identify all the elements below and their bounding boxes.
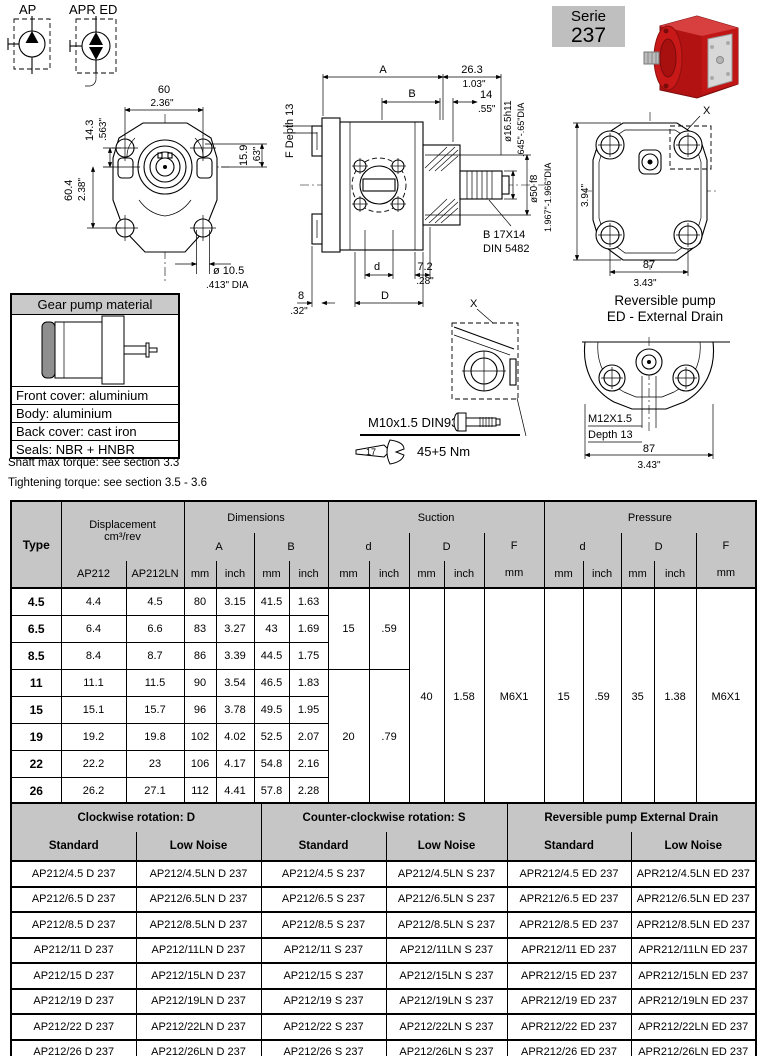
note-tightening-torque: Tightening torque: see section 3.5 - 3.6 [8, 477, 207, 489]
pump-cross-section-icon [12, 315, 174, 385]
part-row: AP212/26 D 237AP212/26LN D 237AP212/26 S… [11, 1040, 756, 1056]
part-cell: AP212/11LN D 237 [136, 938, 261, 964]
part-table-body: AP212/4.5 D 237AP212/4.5LN D 237AP212/4.… [11, 861, 756, 1056]
table-cell: 90 [184, 670, 216, 697]
dim-87: 87 [643, 259, 655, 271]
material-box-figure [12, 315, 178, 387]
part-cell: AP212/6.5LN D 237 [136, 887, 261, 913]
part-cell: AP212/8.5LN D 237 [136, 912, 261, 938]
part-cell: APR212/26 ED 237 [507, 1040, 631, 1056]
part-row: AP212/6.5 D 237AP212/6.5LN D 237AP212/6.… [11, 887, 756, 913]
table-cell: 40 [409, 588, 444, 805]
table-cell: 1.69 [289, 616, 328, 643]
table-cell: 1.63 [289, 588, 328, 616]
part-cell: AP212/4.5 D 237 [11, 861, 136, 887]
part-cell: APR212/8.5 ED 237 [507, 912, 631, 938]
sub-standard: Standard [507, 832, 631, 861]
dim-14: 14 [480, 89, 492, 101]
part-cell: APR212/15LN ED 237 [631, 963, 756, 989]
table-cell: 46.5 [254, 670, 289, 697]
displacement-line1: Displacement [62, 519, 184, 531]
note-shaft-torque: Shaft max torque: see section 3.3 [8, 457, 179, 469]
col-header-a: A [184, 533, 254, 561]
bolt-spec-label: M10x1.5 DIN931 [368, 415, 466, 430]
dim-604: 60.4 [63, 180, 75, 201]
dim-8: 8 [298, 290, 304, 302]
part-cell: AP212/15LN S 237 [386, 963, 507, 989]
dim-343in: 3.43" [633, 278, 656, 289]
table-cell: 3.15 [216, 588, 254, 616]
part-cell: AP212/6.5 S 237 [261, 887, 386, 913]
part-cell: AP212/22 S 237 [261, 1014, 386, 1040]
part-cell: APR212/4.5 ED 237 [507, 861, 631, 887]
type-cell: 22 [11, 751, 61, 778]
part-row: AP212/15 D 237AP212/15LN D 237AP212/15 S… [11, 963, 756, 989]
type-cell: 8.5 [11, 643, 61, 670]
part-cell: APR212/22 ED 237 [507, 1014, 631, 1040]
part-row: AP212/4.5 D 237AP212/4.5LN D 237AP212/4.… [11, 861, 756, 887]
dim-pilot: ø50 f8 [529, 174, 540, 203]
table-cell: 112 [184, 778, 216, 806]
part-cell: APR212/19 ED 237 [507, 989, 631, 1015]
spec-table-head: Type Displacement cm³/rev Dimensions Suc… [11, 501, 756, 588]
spec-row: 4.54.44.5803.1541.51.6315.59401.58M6X115… [11, 588, 756, 616]
type-cell: 19 [11, 724, 61, 751]
part-cell: AP212/19LN D 237 [136, 989, 261, 1015]
part-cell: APR212/15 ED 237 [507, 963, 631, 989]
dim-72: 7.2 [417, 261, 432, 273]
part-cell: APR212/26LN ED 237 [631, 1040, 756, 1056]
col-header-pressure: Pressure [544, 501, 756, 533]
part-table-head: Clockwise rotation: D Counter-clockwise … [11, 803, 756, 861]
type-cell: 4.5 [11, 588, 61, 616]
table-cell: 80 [184, 588, 216, 616]
part-row: AP212/19 D 237AP212/19LN D 237AP212/19 S… [11, 989, 756, 1015]
label-detail-x: X [470, 298, 478, 310]
dim-rev-87: 87 [643, 443, 655, 455]
part-cell: AP212/4.5LN S 237 [386, 861, 507, 887]
unit-cell: mm [254, 561, 289, 589]
part-cell: AP212/26LN D 237 [136, 1040, 261, 1056]
table-cell: 15.1 [61, 697, 126, 724]
table-cell: 3.78 [216, 697, 254, 724]
dim-shaft-dia: ø16.5h11 [503, 100, 514, 142]
table-cell: 4.17 [216, 751, 254, 778]
dim-101: 101 [565, 184, 567, 202]
serie-number: 237 [552, 25, 625, 46]
table-cell: 26.2 [61, 778, 126, 806]
part-cell: AP212/26 S 237 [261, 1040, 386, 1056]
table-cell: 20 [328, 670, 369, 806]
dim-a: A [379, 64, 387, 76]
dim-563in: .563" [98, 118, 109, 141]
part-row: AP212/11 D 237AP212/11LN D 237AP212/11 S… [11, 938, 756, 964]
col-header-displacement: Displacement cm³/rev [61, 501, 184, 561]
table-cell: 57.8 [254, 778, 289, 806]
table-cell: .59 [369, 588, 409, 670]
table-cell: .59 [583, 588, 621, 805]
table-cell: 2.16 [289, 751, 328, 778]
table-cell: M6X1 [484, 588, 544, 805]
table-cell: 8.7 [126, 643, 184, 670]
type-cell: 15 [11, 697, 61, 724]
part-cell: APR212/4.5LN ED 237 [631, 861, 756, 887]
part-cell: APR212/11LN ED 237 [631, 938, 756, 964]
reversible-title: Reversible pump ED - External Drain [575, 293, 755, 325]
unit-cell: inch [369, 561, 409, 589]
sub-low-noise: Low Noise [386, 832, 507, 861]
unit-cell: mm [544, 561, 583, 589]
table-cell: 4.4 [61, 588, 126, 616]
part-cell: AP212/22 D 237 [11, 1014, 136, 1040]
dim-d-big: D [381, 290, 389, 302]
table-cell: 44.5 [254, 643, 289, 670]
reversible-title-line1: Reversible pump [575, 293, 755, 309]
label-depth13: Depth 13 [588, 429, 633, 441]
label-f-depth: F Depth 13 [284, 104, 296, 158]
col-header-pressure-d: d [544, 533, 621, 561]
dim-63in: .63" [252, 146, 263, 164]
part-cell: AP212/11LN S 237 [386, 938, 507, 964]
table-cell: 8.4 [61, 643, 126, 670]
part-cell: AP212/4.5LN D 237 [136, 861, 261, 887]
dim-hole-mm: ø 10.5 [213, 265, 244, 277]
table-cell: 3.54 [216, 670, 254, 697]
label-spline2: DIN 5482 [483, 243, 529, 255]
serie-word: Serie [552, 6, 625, 25]
col-header-dimensions: Dimensions [184, 501, 328, 533]
dim-rev-343in: 3.43" [637, 460, 660, 471]
part-cell: AP212/15LN D 237 [136, 963, 261, 989]
col-header-suction-f: F mm [484, 533, 544, 588]
dim-60: 60 [158, 84, 170, 96]
table-cell: M6X1 [696, 588, 756, 805]
table-cell: 1.83 [289, 670, 328, 697]
rear-view-drawing: X 101 3.94" 87 3.43" [565, 100, 760, 305]
torque-label: 45+5 Nm [417, 444, 470, 459]
reversible-title-line2: ED - External Drain [575, 309, 755, 325]
table-cell: 35 [621, 588, 654, 805]
wrench-size-label: 17 [366, 447, 376, 457]
part-cell: AP212/15 S 237 [261, 963, 386, 989]
dim-236in: 2.36" [150, 98, 173, 109]
table-cell: 19.2 [61, 724, 126, 751]
part-cell: AP212/6.5 D 237 [11, 887, 136, 913]
unit-cell: inch [654, 561, 696, 589]
table-cell: 1.75 [289, 643, 328, 670]
part-cell: AP212/8.5LN S 237 [386, 912, 507, 938]
part-cell: AP212/6.5LN S 237 [386, 887, 507, 913]
table-cell: .79 [369, 670, 409, 806]
material-box: Gear pump material Front cover: aluminiu… [10, 293, 180, 459]
unit-cell: inch [289, 561, 328, 589]
part-cell: AP212/11 S 237 [261, 938, 386, 964]
table-cell: 52.5 [254, 724, 289, 751]
table-cell: 15 [544, 588, 583, 805]
suction-f-unit: mm [485, 560, 544, 587]
part-cell: AP212/4.5 S 237 [261, 861, 386, 887]
part-cell: APR212/6.5 ED 237 [507, 887, 631, 913]
col-header-suction-d: d [328, 533, 409, 561]
dim-32in: .32" [290, 306, 308, 317]
spec-table: Type Displacement cm³/rev Dimensions Suc… [10, 500, 757, 806]
pressure-f-label: F [697, 533, 756, 560]
unit-cell: inch [444, 561, 484, 589]
part-row: AP212/22 D 237AP212/22LN D 237AP212/22 S… [11, 1014, 756, 1040]
table-cell: 106 [184, 751, 216, 778]
dim-159: 15.9 [238, 145, 250, 166]
bolt-icon [452, 409, 510, 435]
table-cell: 1.38 [654, 588, 696, 805]
pump-product-image [642, 6, 757, 106]
col-header-ap212: AP212 [61, 561, 126, 589]
pressure-f-unit: mm [697, 560, 756, 587]
part-cell: AP212/19 S 237 [261, 989, 386, 1015]
ap-symbol-icon [6, 16, 58, 82]
unit-cell: mm [184, 561, 216, 589]
part-cell: AP212/19 D 237 [11, 989, 136, 1015]
table-cell: 102 [184, 724, 216, 751]
front-view-drawing: 60 2.36" 14.3 .563" 60.4 2.38" 15.9 .63"… [55, 78, 270, 296]
col-header-pressure-D: D [621, 533, 696, 561]
table-cell: 1.95 [289, 697, 328, 724]
material-row-body: Body: aluminium [12, 405, 178, 423]
table-cell: 6.4 [61, 616, 126, 643]
dim-28in: .28" [416, 276, 434, 287]
table-cell: 83 [184, 616, 216, 643]
col-header-suction-D: D [409, 533, 484, 561]
sub-standard: Standard [11, 832, 136, 861]
part-cell: AP212/26LN S 237 [386, 1040, 507, 1056]
table-cell: 6.6 [126, 616, 184, 643]
part-cell: AP212/22LN D 237 [136, 1014, 261, 1040]
symbol-apr-ed-label: APR ED [69, 2, 117, 17]
dim-b: B [408, 88, 415, 100]
reversible-drawing: M12X1.5 Depth 13 87 3.43" [580, 332, 755, 474]
part-cell: AP212/8.5 D 237 [11, 912, 136, 938]
part-cell: AP212/8.5 S 237 [261, 912, 386, 938]
table-cell: 11.5 [126, 670, 184, 697]
group-counter-clockwise: Counter-clockwise rotation: S [261, 803, 507, 832]
dim-shaft-dia-in: .645"-.65"DIA [516, 103, 526, 157]
sub-standard: Standard [261, 832, 386, 861]
part-cell: APR212/11 ED 237 [507, 938, 631, 964]
table-cell: 15 [328, 588, 369, 670]
side-view-drawing: F Depth 13 A 26.3 1.03" B 14 .55" ø16.5h… [275, 60, 560, 322]
col-header-b: B [254, 533, 328, 561]
part-cell: AP212/19LN S 237 [386, 989, 507, 1015]
sub-low-noise: Low Noise [136, 832, 261, 861]
material-row-back-cover: Back cover: cast iron [12, 423, 178, 441]
material-row-front-cover: Front cover: aluminium [12, 387, 178, 405]
table-cell: 19.8 [126, 724, 184, 751]
dim-hole-in: .413" DIA [206, 280, 249, 291]
table-cell: 2.28 [289, 778, 328, 806]
table-cell: 4.02 [216, 724, 254, 751]
unit-cell: mm [409, 561, 444, 589]
table-cell: 49.5 [254, 697, 289, 724]
table-cell: 11.1 [61, 670, 126, 697]
suction-f-label: F [485, 533, 544, 560]
serie-badge: Serie 237 [552, 6, 625, 47]
part-cell: APR212/22LN ED 237 [631, 1014, 756, 1040]
part-cell: AP212/15 D 237 [11, 963, 136, 989]
unit-cell: inch [583, 561, 621, 589]
table-cell: 15.7 [126, 697, 184, 724]
unit-cell: mm [621, 561, 654, 589]
label-detail-x-ref: X [703, 105, 711, 117]
label-m12: M12X1.5 [588, 413, 632, 425]
table-cell: 41.5 [254, 588, 289, 616]
dim-55in: .55" [478, 104, 496, 115]
unit-cell: inch [216, 561, 254, 589]
sub-low-noise: Low Noise [631, 832, 756, 861]
table-cell: 1.58 [444, 588, 484, 805]
unit-cell: mm [328, 561, 369, 589]
table-cell: 27.1 [126, 778, 184, 806]
type-cell: 6.5 [11, 616, 61, 643]
part-row: AP212/8.5 D 237AP212/8.5LN D 237AP212/8.… [11, 912, 756, 938]
part-cell: APR212/8.5LN ED 237 [631, 912, 756, 938]
part-cell: AP212/26 D 237 [11, 1040, 136, 1056]
table-cell: 96 [184, 697, 216, 724]
type-cell: 11 [11, 670, 61, 697]
dim-d-small: d [374, 261, 380, 273]
table-cell: 2.07 [289, 724, 328, 751]
table-cell: 22.2 [61, 751, 126, 778]
symbol-ap-label: AP [19, 2, 36, 17]
part-cell: APR212/19LN ED 237 [631, 989, 756, 1015]
part-cell: AP212/22LN S 237 [386, 1014, 507, 1040]
group-reversible: Reversible pump External Drain [507, 803, 756, 832]
table-cell: 54.8 [254, 751, 289, 778]
part-cell: APR212/6.5LN ED 237 [631, 887, 756, 913]
part-cell: AP212/11 D 237 [11, 938, 136, 964]
main-table-body: 4.54.44.5803.1541.51.6315.59401.58M6X115… [11, 588, 756, 805]
dim-238in: 2.38" [77, 178, 88, 201]
type-cell: 26 [11, 778, 61, 806]
table-cell: 4.5 [126, 588, 184, 616]
col-header-ap212ln: AP212LN [126, 561, 184, 589]
col-header-suction: Suction [328, 501, 544, 533]
label-spline1: B 17X14 [483, 229, 525, 241]
dim-pilot-in: 1.967"-1.966"DIA [543, 163, 553, 232]
part-number-table: Clockwise rotation: D Counter-clockwise … [10, 802, 757, 1056]
table-cell: 3.39 [216, 643, 254, 670]
material-row-seals: Seals: NBR + HNBR [12, 441, 178, 458]
material-box-title: Gear pump material [12, 295, 178, 315]
dim-263: 26.3 [461, 64, 482, 76]
col-header-type: Type [11, 501, 61, 588]
table-cell: 3.27 [216, 616, 254, 643]
table-cell: 43 [254, 616, 289, 643]
datasheet-page: AP APR ED Serie 237 [0, 0, 760, 1056]
dim-394in: 3.94" [580, 184, 591, 207]
col-header-pressure-f: F mm [696, 533, 756, 588]
table-cell: 23 [126, 751, 184, 778]
dim-143: 14.3 [84, 120, 96, 141]
group-clockwise: Clockwise rotation: D [11, 803, 261, 832]
wrench-icon: 17 [354, 436, 418, 466]
table-cell: 86 [184, 643, 216, 670]
displacement-line2: cm³/rev [62, 531, 184, 543]
table-cell: 4.41 [216, 778, 254, 806]
